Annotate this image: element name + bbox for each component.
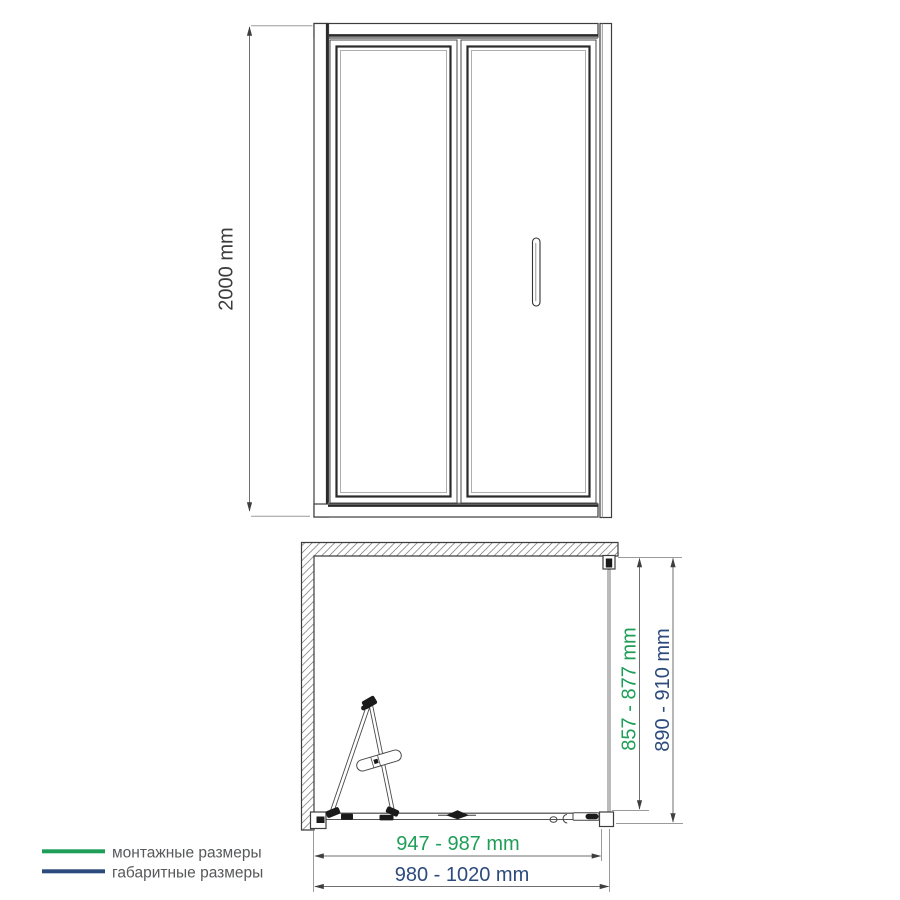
front-view — [314, 24, 612, 518]
bottom-track — [311, 810, 614, 828]
hook-icon — [563, 815, 567, 823]
door-handle — [533, 238, 541, 306]
bracket-insert — [606, 559, 612, 568]
shower-door-dimension-drawing: 2000 mm — [0, 0, 900, 900]
height-dimension: 2000 mm — [216, 26, 313, 517]
height-dimension-label: 2000 mm — [216, 227, 238, 310]
latch-body — [446, 810, 469, 819]
arrow-up-icon — [247, 26, 252, 36]
arrow-left-icon — [314, 884, 324, 889]
legend-label-overall: габаритные размеры — [112, 865, 263, 882]
hinge-block — [341, 814, 353, 820]
hinge-pin — [361, 706, 366, 711]
panel-outer — [330, 40, 457, 503]
guide-block — [380, 815, 394, 821]
magnet-latch — [438, 810, 476, 819]
legend-item-overall: габаритные размеры — [42, 865, 263, 882]
overall-width-label: 980 - 1020 mm — [395, 864, 530, 886]
right-wall-profile — [600, 24, 612, 518]
installation-depth-label: 857 - 877 mm — [619, 627, 641, 750]
installation-width-label: 947 - 987 mm — [396, 833, 519, 855]
technical-drawing-canvas: 2000 mm — [0, 0, 900, 900]
legend-swatch-installation — [42, 849, 105, 853]
installation-depth-dimension: 857 - 877 mm — [619, 558, 643, 810]
right-corner-hardware — [550, 813, 599, 823]
overall-width-dimension: 980 - 1020 mm — [314, 864, 609, 889]
arrow-down-icon — [247, 502, 252, 512]
door-panel-left — [330, 40, 457, 503]
legend-swatch-overall — [42, 869, 105, 873]
legend: монтажные размеры габаритные размеры — [42, 845, 263, 882]
arrow-up-icon — [670, 558, 675, 568]
arrow-right-icon — [592, 853, 602, 858]
side-glass-panel — [608, 570, 610, 814]
door-panel-right — [461, 40, 596, 503]
installation-width-dimension: 947 - 987 mm — [314, 833, 601, 859]
legend-label-installation: монтажные размеры — [112, 845, 262, 862]
left-profile-insert — [317, 817, 325, 824]
arrow-down-icon — [637, 800, 642, 810]
folded-door — [325, 695, 402, 818]
arrow-down-icon — [670, 813, 675, 823]
arrow-left-icon — [314, 853, 324, 858]
arrow-right-icon — [600, 884, 610, 889]
bracket-pin — [586, 814, 599, 819]
wall-hatch — [302, 543, 619, 831]
overall-depth-dimension: 890 - 910 mm — [652, 558, 676, 823]
right-wall-bracket — [603, 556, 615, 570]
plan-view — [302, 543, 619, 831]
arrow-up-icon — [637, 558, 642, 568]
overall-depth-label: 890 - 910 mm — [652, 628, 674, 751]
legend-item-installation: монтажные размеры — [42, 845, 262, 862]
panel-outer — [461, 40, 596, 503]
right-profile-section — [600, 812, 614, 827]
